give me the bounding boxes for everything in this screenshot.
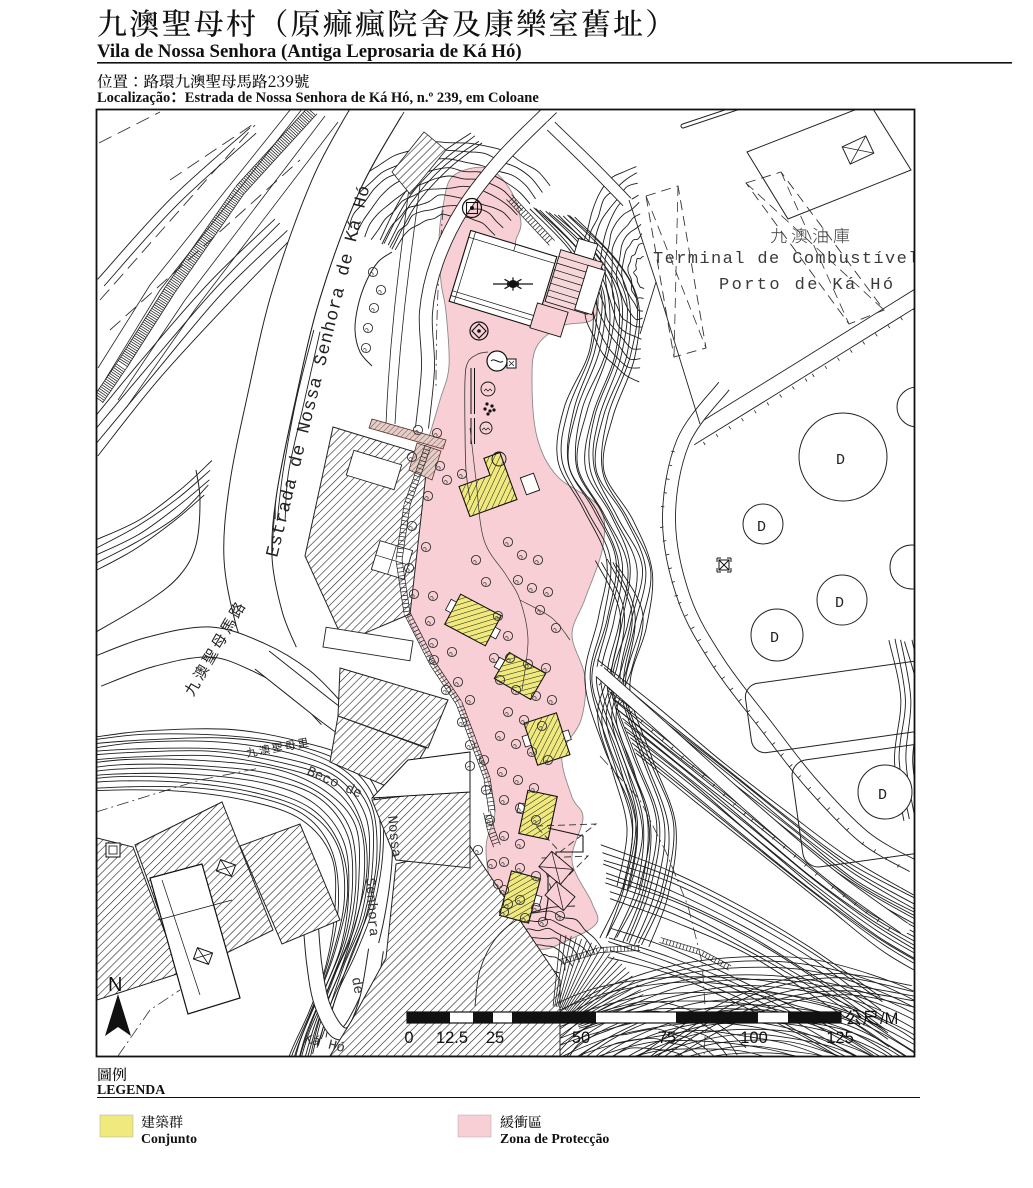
svg-text:D: D [835,595,844,612]
svg-text:LEGENDA: LEGENDA [97,1082,165,1097]
svg-text:75: 75 [658,1029,676,1047]
svg-text:Localização：Estrada de Nossa S: Localização：Estrada de Nossa Senhora de … [97,90,539,106]
svg-text:Zona de Protecção: Zona de Protecção [500,1131,609,1146]
svg-text:25: 25 [486,1029,504,1047]
svg-text:Senhora: Senhora [361,877,381,937]
svg-text:50: 50 [572,1029,590,1047]
svg-text:100: 100 [740,1029,768,1047]
svg-text:0: 0 [404,1029,413,1047]
svg-text:Terminal de Combustível: Terminal de Combustível [653,250,920,269]
svg-text:D: D [836,452,845,469]
svg-text:Vila de Nossa Senhora (Antiga: Vila de Nossa Senhora (Antiga Leprosaria… [97,41,522,62]
svg-text:125: 125 [826,1029,854,1047]
svg-text:N: N [108,974,122,996]
svg-text:de: de [347,976,366,995]
svg-text:Conjunto: Conjunto [141,1131,197,1146]
svg-text:Nossa: Nossa [383,815,403,858]
svg-text:/M: /M [880,1010,898,1028]
svg-text:Porto de Ká Hó: Porto de Ká Hó [719,276,895,295]
svg-text:D: D [770,630,779,647]
svg-text:D: D [878,787,887,804]
svg-text:12.5: 12.5 [436,1029,468,1047]
svg-text:D: D [757,519,766,536]
